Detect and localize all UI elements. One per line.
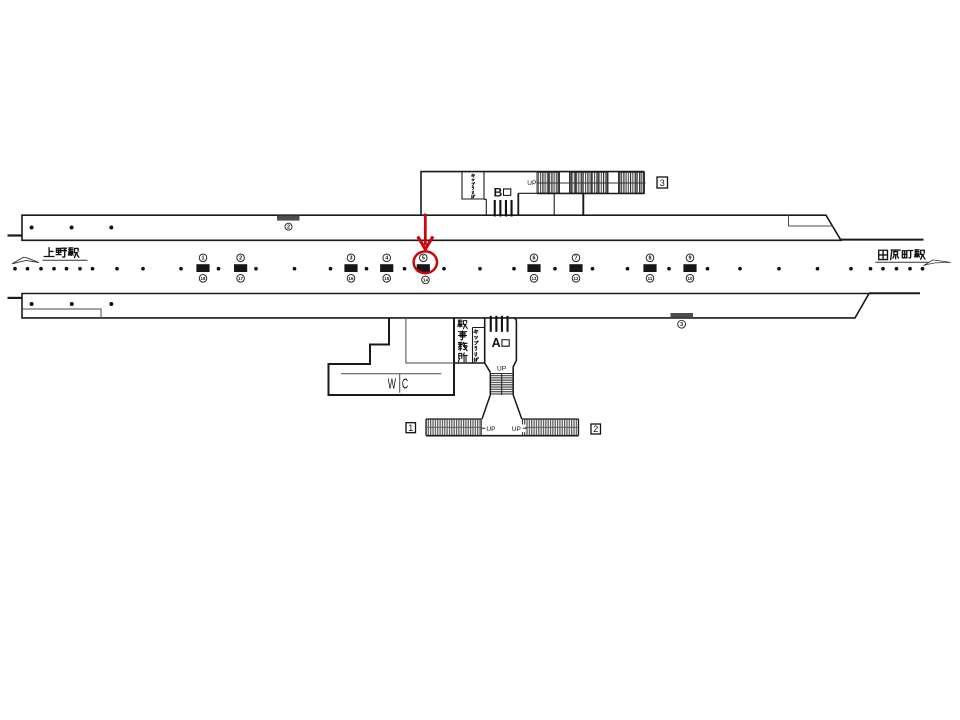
svg-text:2: 2 bbox=[239, 256, 242, 262]
svg-text:12: 12 bbox=[574, 276, 579, 281]
svg-text:14: 14 bbox=[423, 277, 428, 282]
svg-text:3: 3 bbox=[660, 178, 665, 188]
svg-text:6: 6 bbox=[533, 256, 536, 262]
svg-text:1: 1 bbox=[408, 423, 413, 433]
svg-text:UP: UP bbox=[497, 366, 506, 373]
svg-text:2: 2 bbox=[593, 424, 598, 434]
svg-text:5: 5 bbox=[422, 256, 425, 262]
svg-text:15: 15 bbox=[384, 276, 389, 281]
svg-text:UP: UP bbox=[512, 426, 521, 433]
svg-text:16: 16 bbox=[349, 276, 354, 281]
svg-text:UP: UP bbox=[486, 426, 495, 433]
svg-text:9: 9 bbox=[689, 256, 692, 262]
svg-text:A: A bbox=[492, 336, 501, 350]
svg-text:1: 1 bbox=[202, 256, 205, 262]
svg-text:B: B bbox=[494, 185, 503, 199]
svg-text:13: 13 bbox=[532, 276, 537, 281]
svg-text:3: 3 bbox=[680, 322, 683, 328]
svg-text:W: W bbox=[388, 375, 397, 392]
svg-text:18: 18 bbox=[201, 276, 206, 281]
svg-text:4: 4 bbox=[385, 256, 388, 262]
svg-text:UP: UP bbox=[527, 180, 536, 187]
svg-text:3: 3 bbox=[350, 256, 353, 262]
svg-text:8: 8 bbox=[649, 256, 652, 262]
svg-text:11: 11 bbox=[648, 276, 653, 281]
svg-text:7: 7 bbox=[575, 256, 578, 262]
svg-text:2: 2 bbox=[287, 225, 290, 231]
svg-text:17: 17 bbox=[238, 276, 243, 281]
svg-text:C: C bbox=[402, 375, 409, 392]
svg-text:10: 10 bbox=[688, 276, 693, 281]
